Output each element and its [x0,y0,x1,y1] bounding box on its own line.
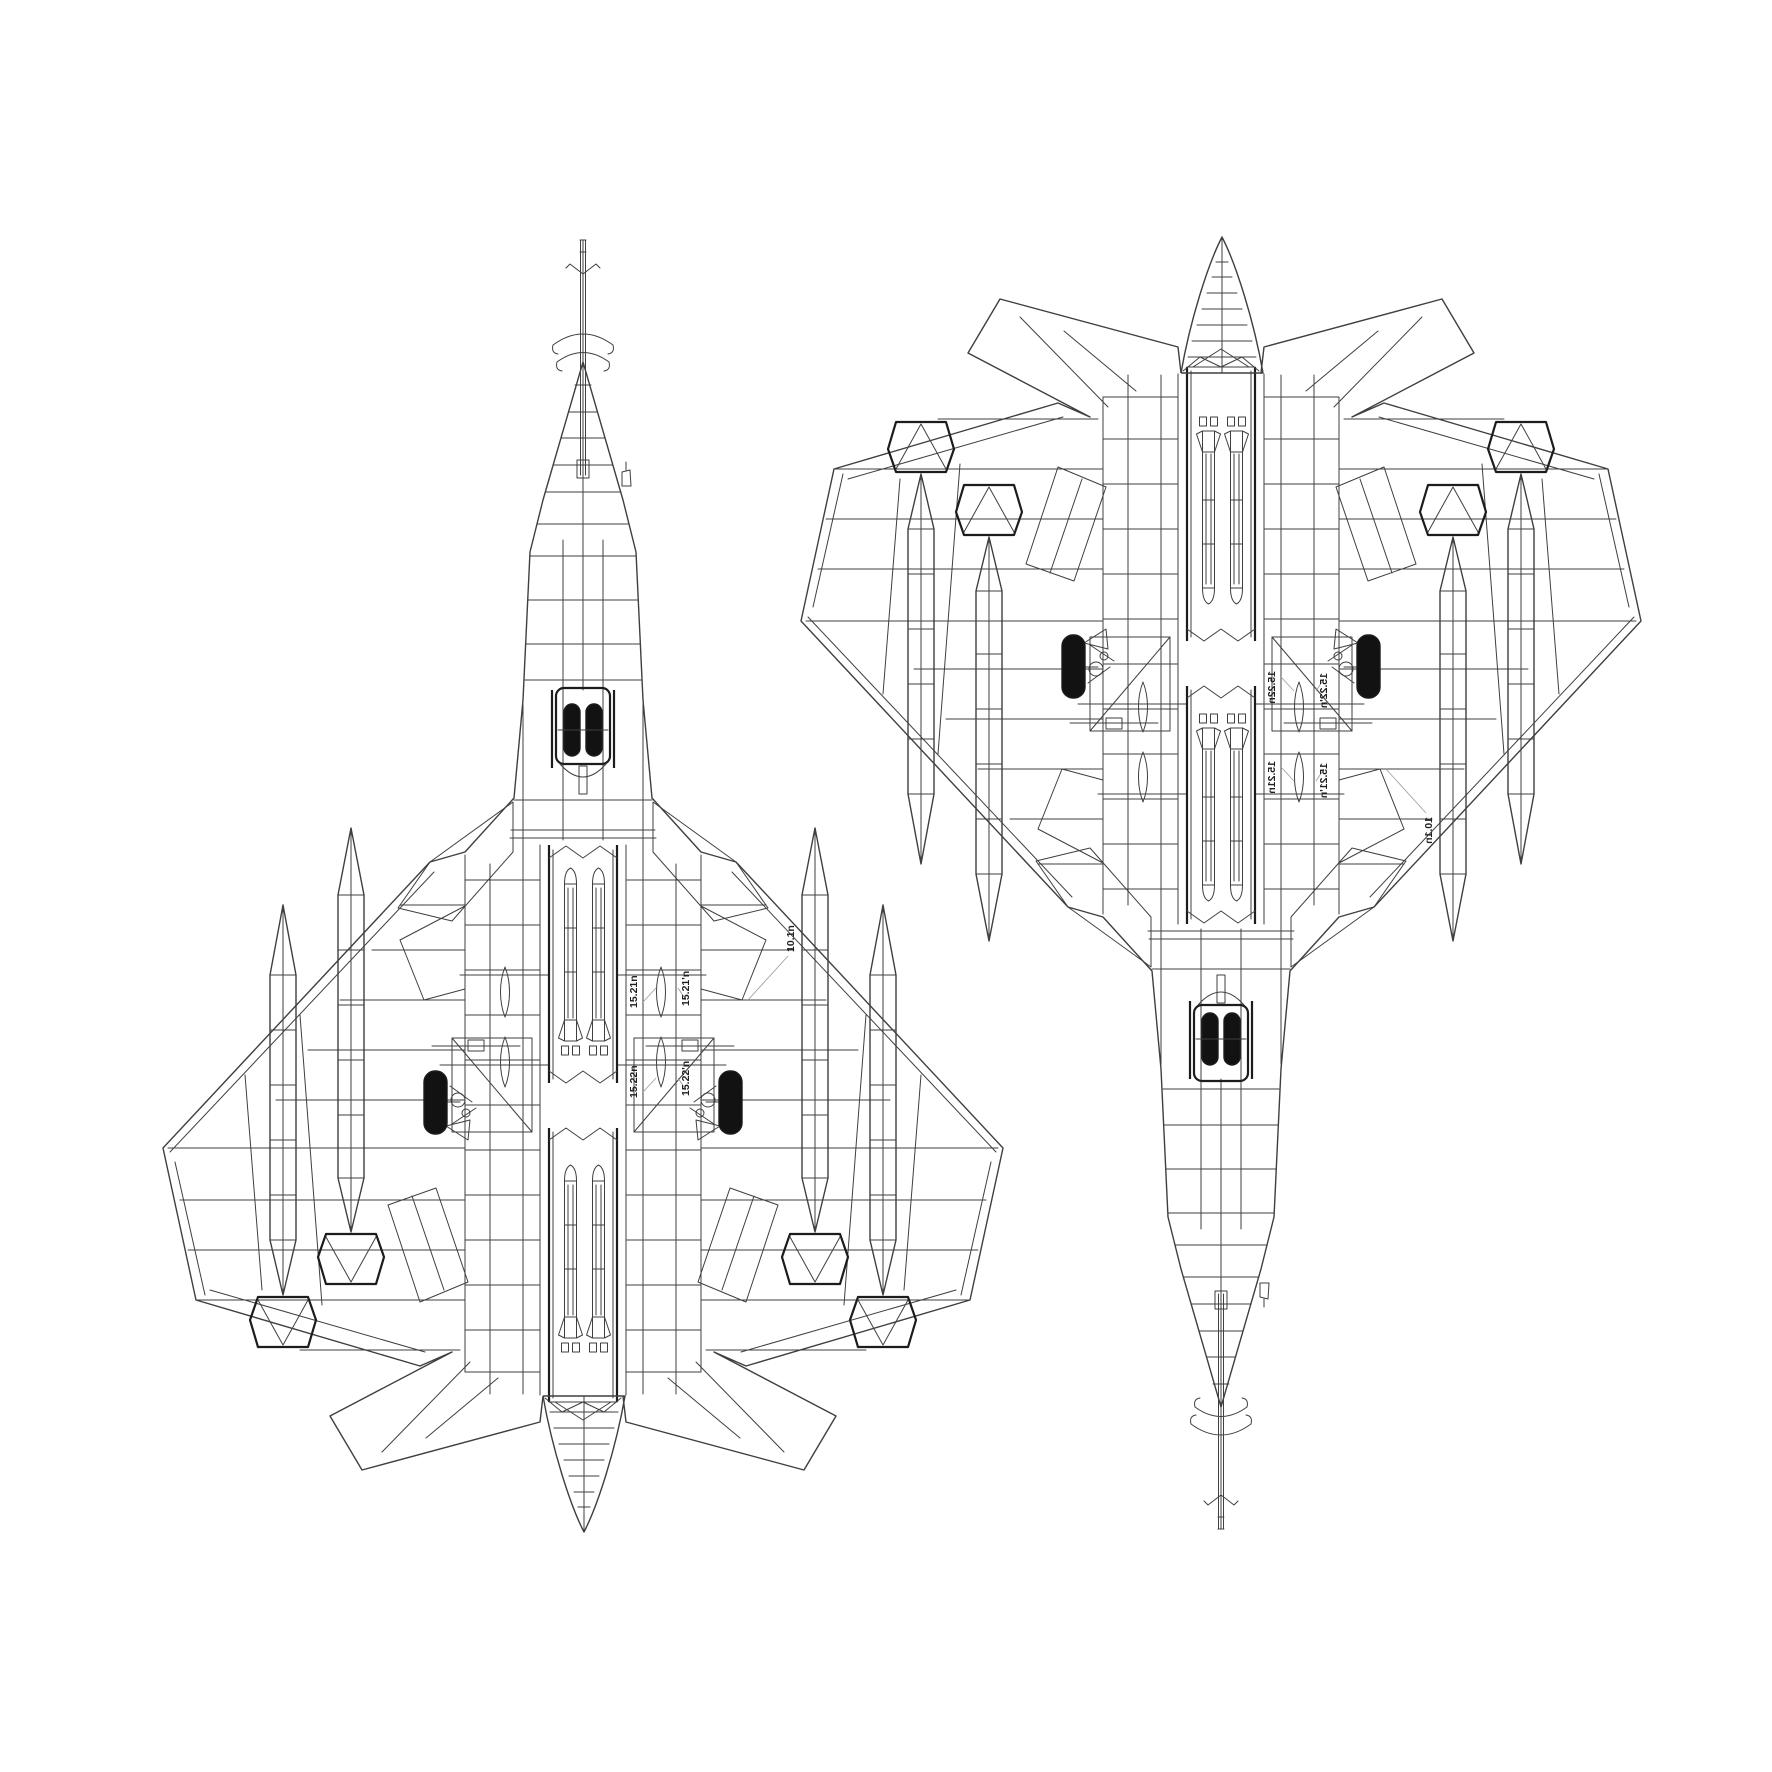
drawing-sheet: 15.21n 15.21'n 15.22n 15.22'n 10.1n [0,0,1772,1772]
aircraft-left-nose-up [163,240,1003,1532]
aircraft-right-nose-down [801,237,1641,1529]
technical-drawing-canvas: 15.21n 15.21'n 15.22n 15.22'n 10.1n [0,0,1772,1772]
